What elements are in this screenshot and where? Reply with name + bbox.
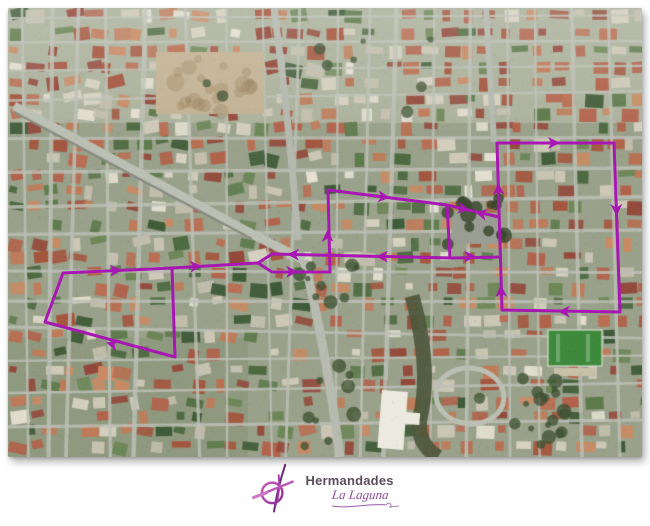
route-map-page: Hermandades La Laguna <box>0 0 650 526</box>
logo-text-block: Hermandades La Laguna <box>306 472 402 509</box>
brand-logo: Hermandades La Laguna <box>0 460 650 522</box>
hermandades-cross-icon <box>249 463 299 519</box>
satellite-basemap <box>8 8 642 457</box>
logo-title: Hermandades <box>306 474 402 488</box>
aerial-route-photo <box>8 8 642 457</box>
logo-subtitle: La Laguna <box>331 488 402 502</box>
